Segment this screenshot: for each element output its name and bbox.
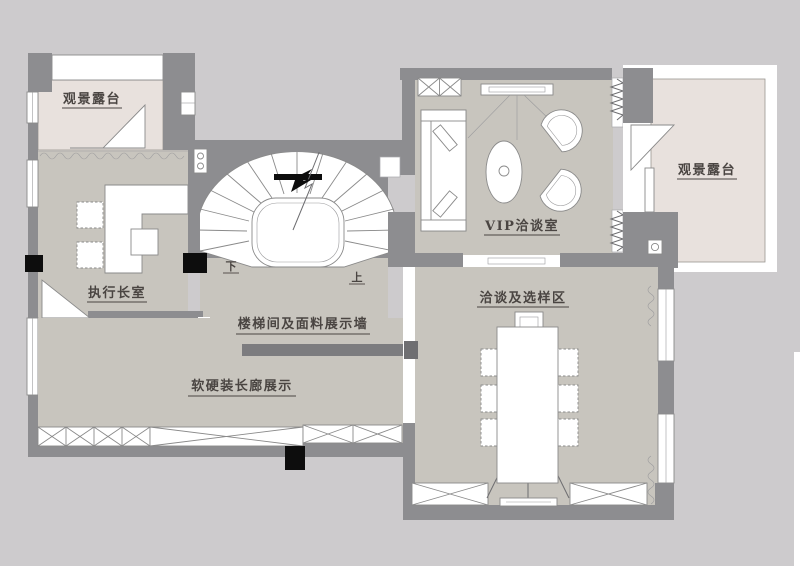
display-wall: [242, 344, 408, 356]
wall: [28, 445, 310, 457]
label-negotiation: 洽谈及选样区: [479, 290, 566, 306]
column: [285, 446, 305, 470]
label-terrace-left: 观景露台: [63, 91, 121, 107]
stair-top-landing: [380, 157, 400, 177]
column: [25, 255, 43, 272]
desk-chair: [131, 229, 158, 255]
wall: [658, 268, 674, 289]
sofa: [421, 110, 466, 231]
wall: [402, 68, 415, 175]
coffee-table: [486, 141, 522, 203]
terrace-left-railing: [52, 55, 163, 80]
wall: [623, 68, 653, 123]
door-jamb: [645, 168, 654, 212]
wall: [28, 53, 52, 92]
wall: [188, 140, 388, 152]
label-office: 执行长室: [88, 285, 146, 301]
guest-chair: [77, 202, 103, 228]
opening: [463, 255, 560, 267]
label-terrace-right: 观景露台: [678, 162, 736, 178]
display-wall-cap: [404, 341, 418, 359]
stair-core: [252, 198, 344, 267]
label-vip: VIP洽谈室: [484, 218, 559, 234]
wall: [303, 443, 415, 457]
floor-plan-canvas: 观景露台 执行长室 楼梯间及面料展示墙 软硬装长廊展示 VIP洽谈室 观景露台 …: [0, 0, 800, 566]
image-edge: [794, 352, 800, 566]
wall: [388, 212, 402, 267]
guest-chair: [77, 242, 103, 268]
sample-table: [497, 327, 558, 483]
label-stair-down: 下: [226, 260, 237, 273]
wall: [400, 253, 463, 267]
room-gallery: [28, 318, 418, 470]
room-vip: [400, 68, 633, 267]
downpipe: [648, 240, 662, 254]
wall-cavity: [612, 210, 623, 252]
window: [181, 92, 195, 115]
wall: [560, 253, 633, 267]
floor-plan-drawing: 观景露台 执行长室 楼梯间及面料展示墙 软硬装长廊展示 VIP洽谈室 观景露台 …: [0, 0, 800, 566]
label-gallery: 软硬装长廊展示: [191, 378, 293, 394]
label-stair-up: 上: [352, 270, 363, 284]
wall: [403, 505, 673, 520]
vip-cabinet: [418, 78, 461, 96]
column: [183, 253, 207, 273]
label-stair-wall: 楼梯间及面料展示墙: [238, 316, 369, 332]
tv: [481, 84, 553, 95]
wall: [658, 361, 674, 414]
wall: [88, 311, 187, 319]
display-cabinets: [38, 425, 402, 446]
